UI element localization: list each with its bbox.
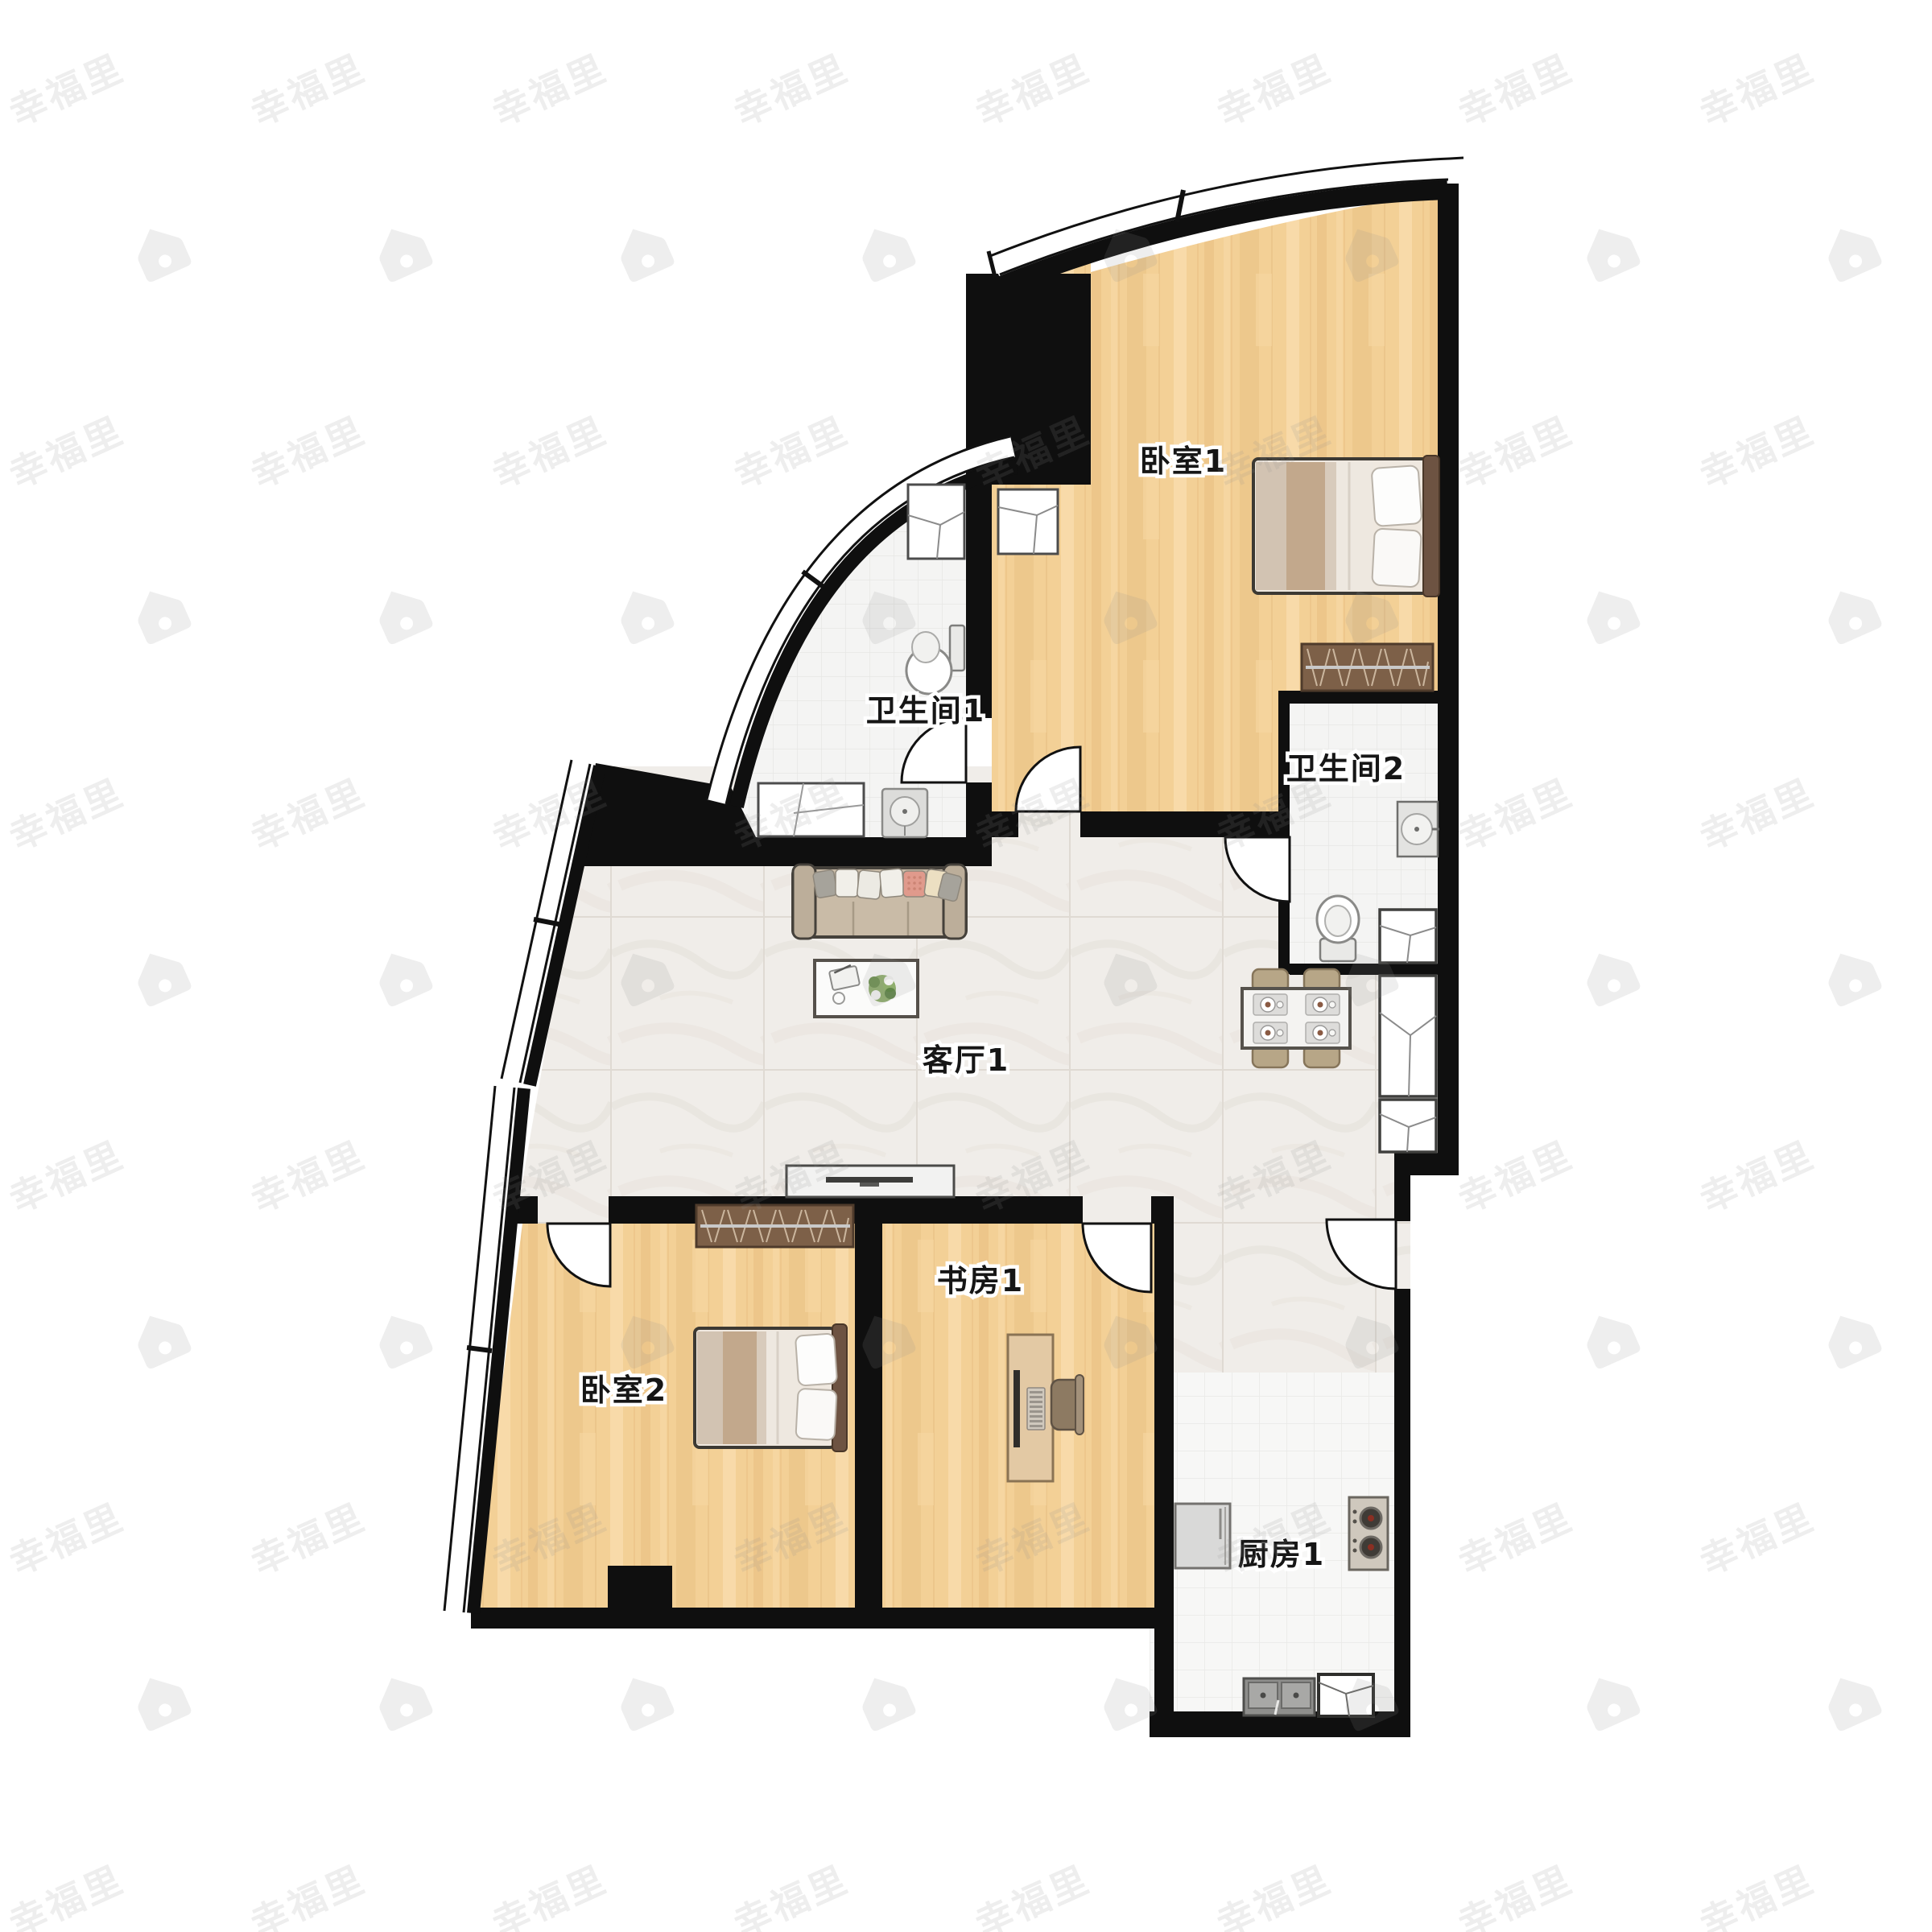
watermark-layer <box>0 0 1932 1932</box>
floorplan-canvas: 幸福里 <box>0 0 1932 1932</box>
